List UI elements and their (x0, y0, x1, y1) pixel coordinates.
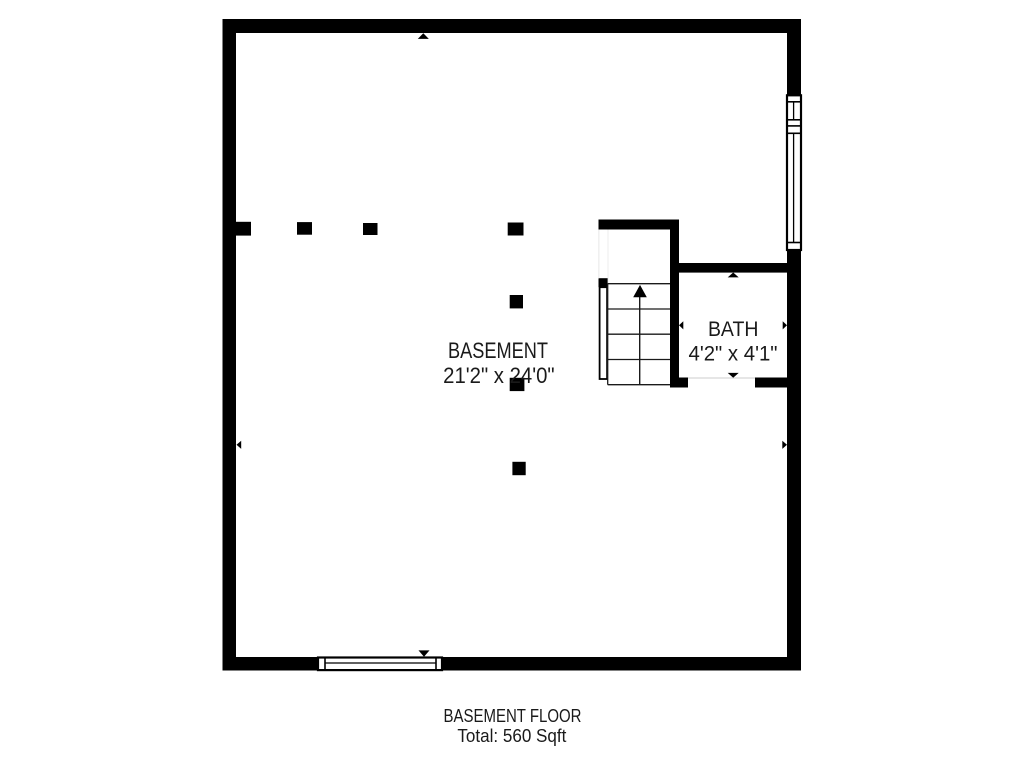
svg-text:BATH: BATH (708, 317, 759, 341)
svg-text:BASEMENT: BASEMENT (448, 338, 548, 363)
svg-text:Total: 560 Sqft: Total: 560 Sqft (457, 725, 566, 746)
svg-text:21'2" x 24'0": 21'2" x 24'0" (443, 363, 555, 388)
svg-text:4'2" x 4'1": 4'2" x 4'1" (689, 342, 778, 366)
svg-text:BASEMENT FLOOR: BASEMENT FLOOR (444, 705, 582, 726)
